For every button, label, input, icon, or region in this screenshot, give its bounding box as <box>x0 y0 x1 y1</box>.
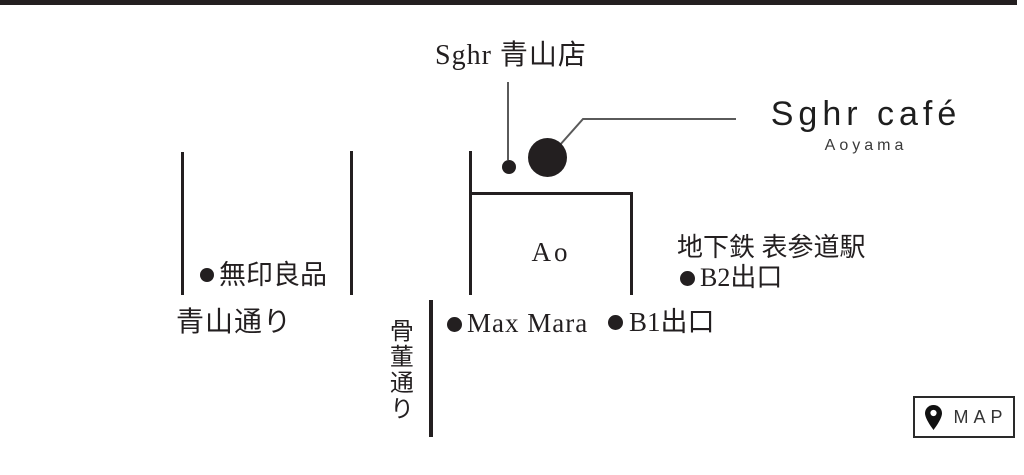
store-location-dot <box>502 160 516 174</box>
max-mara-label: Max Mara <box>467 309 588 339</box>
building-ao-label: Ao <box>532 223 571 268</box>
cafe-access-map: Ao Sghr 青山店 Sghr café Aoyama 無印良品 青山通り 骨… <box>0 0 1024 475</box>
map-button[interactable]: MAP <box>913 396 1015 438</box>
exit-b1-label: B1出口 <box>629 308 715 338</box>
cafe-subtitle: Aoyama <box>764 137 968 155</box>
max-mara-bullet-dot <box>447 317 462 332</box>
kotto-dori-label: 骨董通り <box>385 318 411 428</box>
store-leader-line <box>507 82 509 160</box>
side-street-line-left <box>181 152 184 295</box>
map-pin-icon <box>925 405 942 430</box>
store-label: Sghr 青山店 <box>435 41 587 72</box>
exit-b1-bullet-dot <box>608 315 623 330</box>
muji-bullet-dot <box>200 268 214 282</box>
exit-b2-label: B2出口 <box>700 264 782 293</box>
aoyama-dori-road-line <box>0 0 1017 5</box>
aoyama-dori-label: 青山通り <box>176 308 292 339</box>
exit-b2-bullet-dot <box>680 271 695 286</box>
map-button-label: MAP <box>953 407 1007 428</box>
subway-station-label: 地下鉄 表参道駅 <box>677 234 866 263</box>
muji-label: 無印良品 <box>219 261 327 291</box>
kotto-dori-road-line <box>429 300 433 437</box>
cafe-title: Sghr café <box>764 95 968 134</box>
building-ao: Ao <box>469 192 633 295</box>
side-street-line-middle <box>350 151 353 295</box>
cafe-location-dot <box>528 138 567 177</box>
